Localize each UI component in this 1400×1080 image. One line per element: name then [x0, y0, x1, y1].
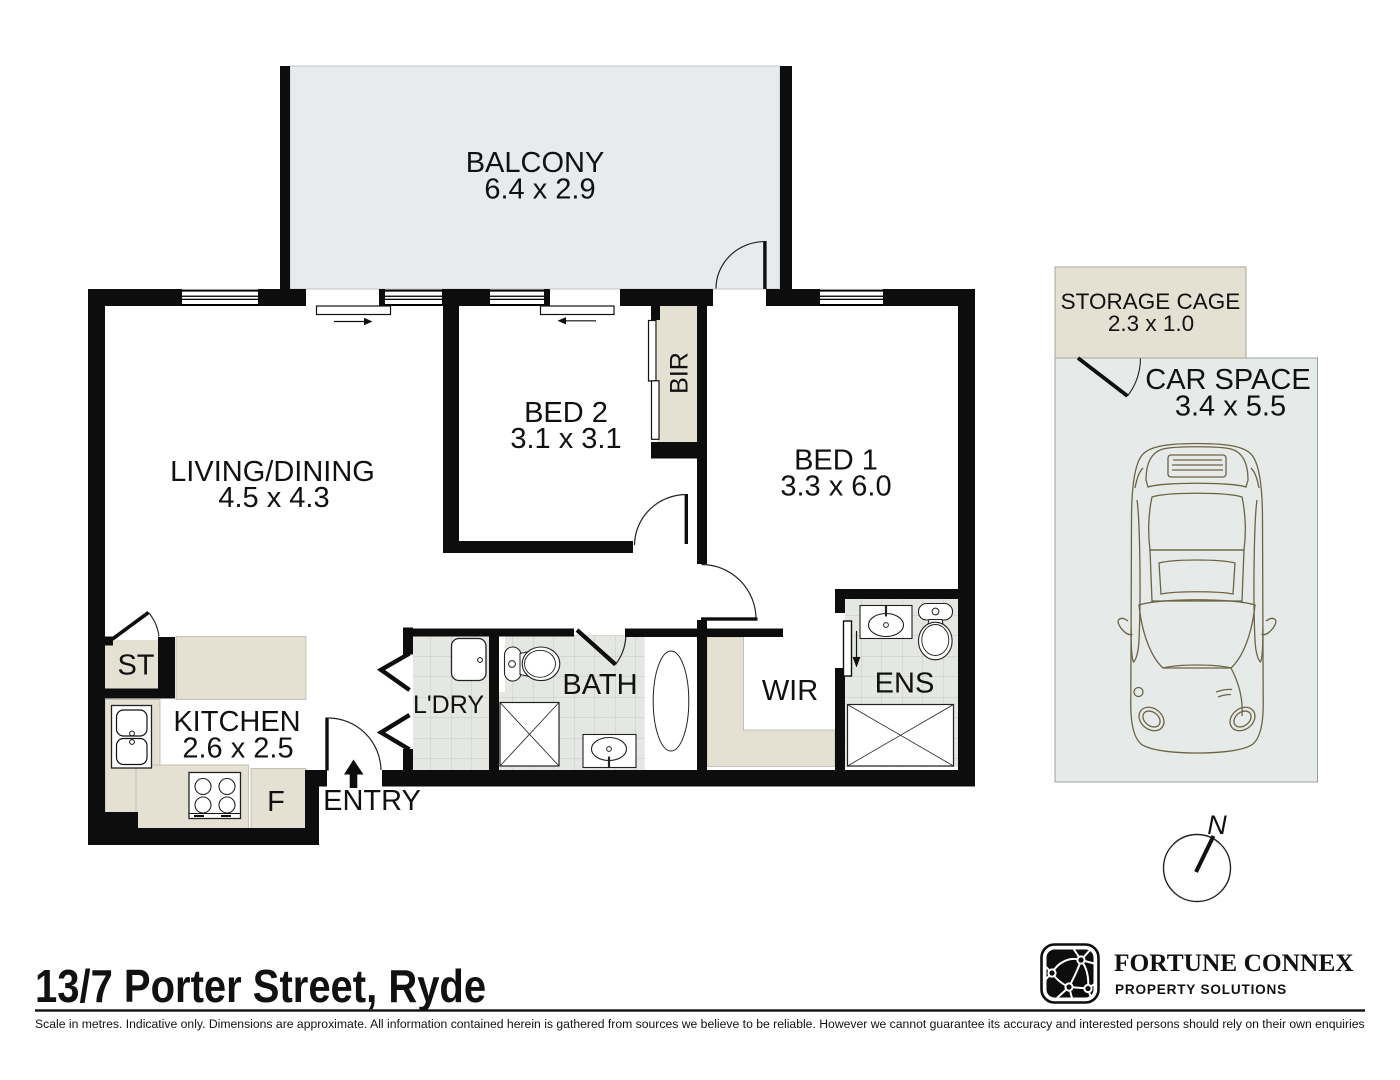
svg-text:3.4 x 5.5: 3.4 x 5.5 — [1175, 391, 1286, 423]
svg-text:ST: ST — [117, 650, 154, 682]
svg-text:13/7 Porter Street, Ryde: 13/7 Porter Street, Ryde — [35, 961, 486, 1012]
svg-text:2.3 x 1.0: 2.3 x 1.0 — [1108, 311, 1194, 336]
svg-text:2.6 x 2.5: 2.6 x 2.5 — [182, 733, 293, 765]
svg-text:F: F — [267, 786, 285, 818]
svg-text:ENTRY: ENTRY — [323, 785, 421, 817]
svg-text:N: N — [1207, 810, 1227, 840]
svg-text:L'DRY: L'DRY — [413, 691, 484, 719]
svg-text:Scale in metres. Indicative on: Scale in metres. Indicative only. Dimens… — [35, 1017, 1365, 1031]
svg-text:3.3 x 6.0: 3.3 x 6.0 — [780, 471, 891, 503]
svg-text:4.5 x 4.3: 4.5 x 4.3 — [218, 482, 329, 514]
svg-text:WIR: WIR — [762, 675, 818, 707]
svg-text:ENS: ENS — [875, 668, 935, 700]
svg-text:6.4 x 2.9: 6.4 x 2.9 — [484, 174, 595, 206]
svg-text:BIR: BIR — [666, 352, 694, 394]
svg-text:PROPERTY SOLUTIONS: PROPERTY SOLUTIONS — [1115, 982, 1287, 997]
svg-text:FORTUNE CONNEX: FORTUNE CONNEX — [1114, 949, 1354, 977]
svg-text:BATH: BATH — [562, 669, 637, 701]
svg-text:3.1 x 3.1: 3.1 x 3.1 — [510, 423, 621, 455]
